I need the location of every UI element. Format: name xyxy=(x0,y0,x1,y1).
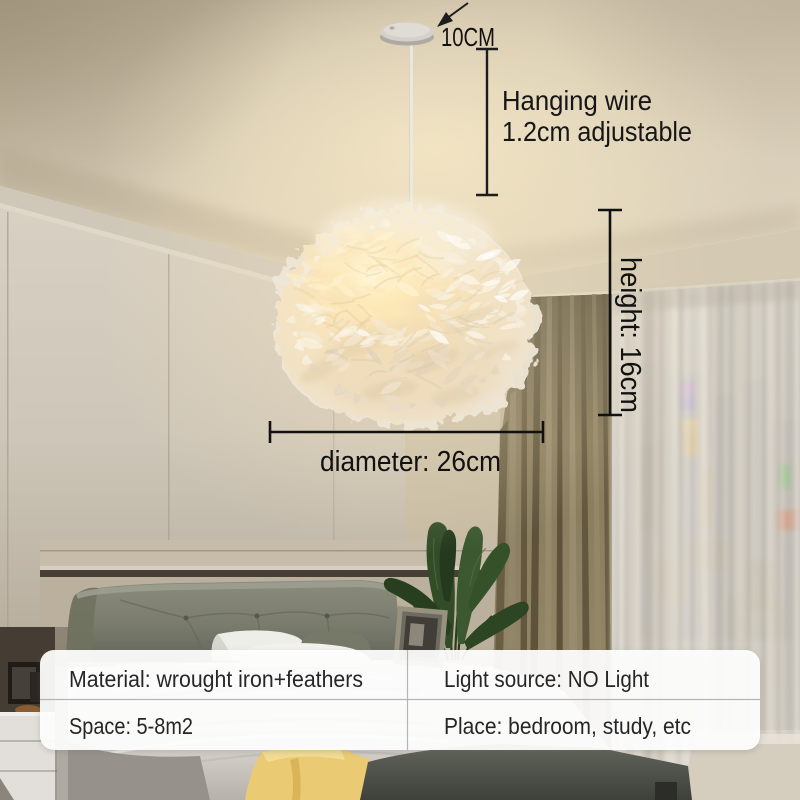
svg-text:Material: wrought iron+feather: Material: wrought iron+feathers xyxy=(69,666,363,692)
svg-text:Light source: NO Light: Light source: NO Light xyxy=(444,666,650,692)
svg-text:Hanging wire: Hanging wire xyxy=(502,85,652,116)
svg-text:height: 16cm: height: 16cm xyxy=(614,257,646,413)
svg-text:1.2cm adjustable: 1.2cm adjustable xyxy=(502,116,692,147)
svg-text:Space: 5-8m2: Space: 5-8m2 xyxy=(69,713,193,739)
svg-text:Place: bedroom, study, etc: Place: bedroom, study, etc xyxy=(444,713,691,739)
svg-text:10CM: 10CM xyxy=(441,22,495,52)
svg-text:diameter: 26cm: diameter: 26cm xyxy=(320,446,501,478)
